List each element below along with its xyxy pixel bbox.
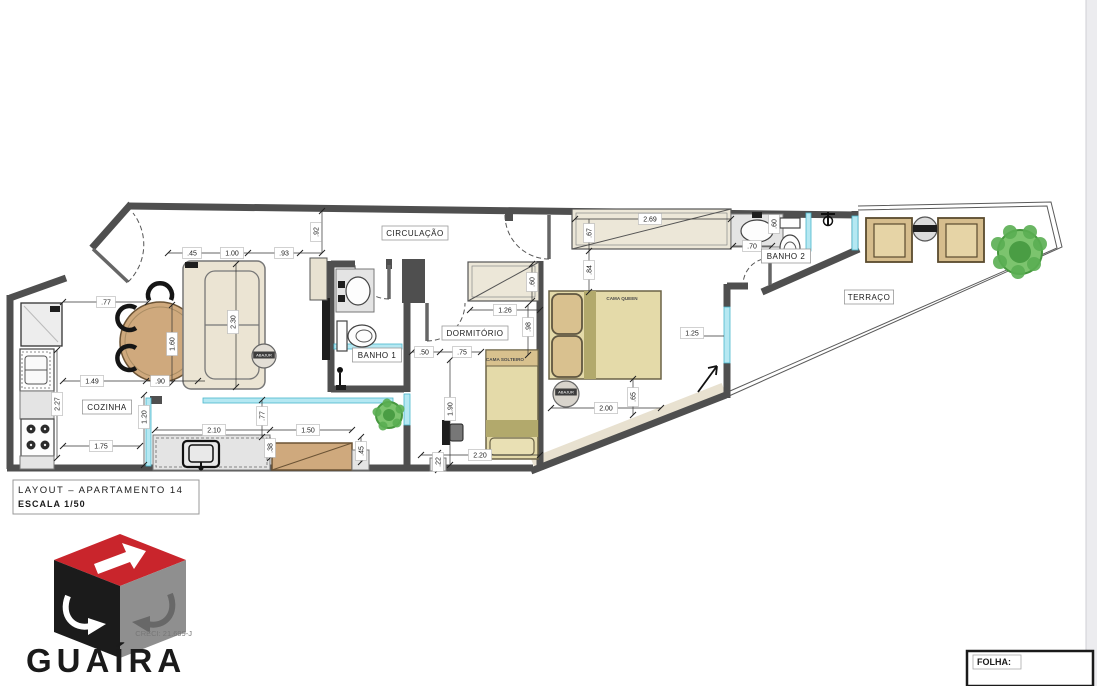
dimension-text: 2.00 bbox=[599, 406, 613, 413]
dorm-desk bbox=[442, 420, 450, 445]
kitchen-counter bbox=[20, 391, 54, 419]
dimension-text: .75 bbox=[457, 350, 467, 357]
dimension-text: .22 bbox=[436, 457, 443, 467]
dimension-text: 2.30 bbox=[231, 315, 238, 329]
dimension-label: 1.90 bbox=[445, 397, 456, 420]
dimension-text: .65 bbox=[631, 392, 638, 402]
dimension-label: .60 bbox=[527, 273, 538, 292]
dimension-label: .90 bbox=[151, 376, 170, 387]
plan-scale: ESCALA 1/50 bbox=[18, 499, 86, 509]
dimension-text: 1.50 bbox=[301, 428, 315, 435]
dimension-label: .75 bbox=[453, 347, 472, 358]
tv bbox=[322, 298, 330, 360]
folha-label: FOLHA: bbox=[977, 657, 1011, 667]
toilet2-tank bbox=[780, 218, 800, 228]
furniture-label: CAMA SOLTEIRO bbox=[486, 357, 524, 362]
folha-box: FOLHA: bbox=[967, 651, 1093, 686]
dimension-label: 1.49 bbox=[80, 376, 103, 387]
room-name: TERRAÇO bbox=[848, 293, 891, 302]
kitchen-appliances bbox=[20, 303, 62, 469]
banho1-sink bbox=[346, 277, 370, 305]
floor-plan-drawing: .771.49.902.271.201.751.60.451.00.93.922… bbox=[0, 0, 1097, 686]
dimension-label: 1.60 bbox=[167, 332, 178, 355]
dimension-text: .60 bbox=[530, 277, 537, 287]
furniture-tag-text: ABAJUR bbox=[256, 353, 272, 358]
dimension-label: .50 bbox=[415, 347, 434, 358]
dimension-label: 1.75 bbox=[89, 441, 112, 452]
dimension-text: 1.00 bbox=[225, 251, 239, 258]
room-name: COZINHA bbox=[87, 403, 127, 412]
dimension-label: .93 bbox=[275, 248, 294, 259]
dimension-label: 1.25 bbox=[680, 328, 703, 339]
sofa-tag bbox=[185, 262, 198, 268]
page-edge bbox=[1086, 0, 1097, 686]
dimension-label: .38 bbox=[265, 439, 276, 458]
dimension-text: .98 bbox=[526, 322, 533, 332]
dimension-text: 1.90 bbox=[448, 402, 455, 416]
plant bbox=[991, 225, 1047, 279]
title-block: LAYOUT – APARTAMENTO 14 ESCALA 1/50 bbox=[13, 480, 199, 514]
dimension-label: 2.69 bbox=[638, 214, 661, 225]
dimension-text: .84 bbox=[587, 265, 594, 275]
dimension-text: 1.60 bbox=[170, 337, 177, 351]
dimension-text: 2.10 bbox=[207, 428, 221, 435]
dimension-text: 1.26 bbox=[498, 308, 512, 315]
dimension-label: .60 bbox=[769, 215, 780, 234]
dimension-label: .70 bbox=[743, 241, 762, 252]
dimension-label: 2.27 bbox=[52, 392, 63, 415]
room-label: TERRAÇO bbox=[844, 290, 893, 304]
room-label: COZINHA bbox=[82, 400, 131, 414]
toilet-tank bbox=[337, 321, 347, 351]
dimension-label: .45 bbox=[183, 248, 202, 259]
dimension-label: .22 bbox=[433, 453, 444, 472]
dimension-text: .77 bbox=[101, 300, 111, 307]
dimension-label: .84 bbox=[584, 261, 595, 280]
dorm-tv bbox=[450, 424, 463, 441]
furniture-tag: ABAJUR bbox=[555, 389, 577, 396]
room-name: CIRCULAÇÃO bbox=[386, 229, 443, 238]
room-name: BANHO 2 bbox=[767, 252, 806, 261]
queen-pillow bbox=[552, 294, 582, 334]
dimension-label: 1.26 bbox=[493, 305, 516, 316]
furniture-tag: ABAJUR bbox=[253, 352, 275, 359]
dimension-label: .77 bbox=[257, 407, 268, 426]
dimension-label: .45 bbox=[356, 442, 367, 461]
dimension-text: .70 bbox=[747, 244, 757, 251]
dimension-text: .67 bbox=[587, 228, 594, 238]
fridge-tag bbox=[50, 306, 60, 312]
dimension-text: 2.20 bbox=[473, 453, 487, 460]
dimension-label: 2.10 bbox=[202, 425, 225, 436]
shower-knob bbox=[337, 367, 343, 373]
dimension-text: .77 bbox=[260, 411, 267, 421]
dimension-text: 1.25 bbox=[685, 331, 699, 338]
single-bedroom bbox=[430, 262, 539, 471]
brand-name: GUAÍRA bbox=[26, 642, 186, 679]
dimension-text: .45 bbox=[359, 446, 366, 456]
furniture-label: CAMA QUEEN bbox=[606, 296, 638, 301]
dimension-label: 2.30 bbox=[228, 310, 239, 333]
stove bbox=[21, 419, 54, 456]
room-label: CIRCULAÇÃO bbox=[382, 226, 448, 240]
dimension-text: 2.27 bbox=[55, 397, 62, 411]
dimension-text: .60 bbox=[772, 219, 779, 229]
bathroom-1 bbox=[336, 269, 376, 390]
queen-bedroom bbox=[549, 209, 731, 407]
dimension-text: .92 bbox=[314, 227, 321, 237]
dimension-text: .50 bbox=[419, 350, 429, 357]
living-room bbox=[183, 258, 330, 389]
queen-pillow bbox=[552, 336, 582, 377]
dimension-text: 2.69 bbox=[643, 217, 657, 224]
room-name: BANHO 1 bbox=[358, 351, 397, 360]
logo: CRECI: 21.699-J GUAÍRA bbox=[26, 534, 192, 679]
room-label: BANHO 1 bbox=[352, 348, 401, 362]
room-label: DORMITÓRIO bbox=[442, 326, 508, 340]
dimension-label: 2.00 bbox=[594, 403, 617, 414]
dimension-label: .65 bbox=[628, 388, 639, 407]
furniture-tag-text: ABAJUR bbox=[558, 390, 574, 395]
dimension-label: 1.20 bbox=[139, 405, 150, 428]
room-label: BANHO 2 bbox=[761, 249, 810, 263]
dining-chair bbox=[148, 283, 172, 300]
dimension-label: 2.20 bbox=[468, 450, 491, 461]
terrace-furniture bbox=[866, 217, 1047, 279]
plan-title: LAYOUT – APARTAMENTO 14 bbox=[18, 485, 183, 496]
floor-plan-sheet: .771.49.902.271.201.751.60.451.00.93.922… bbox=[0, 0, 1097, 686]
pillar bbox=[310, 258, 327, 300]
dimension-label: .92 bbox=[311, 223, 322, 242]
dimension-label: 1.00 bbox=[220, 248, 243, 259]
dimension-text: 1.75 bbox=[94, 444, 108, 451]
terrace-table-tag bbox=[913, 225, 937, 232]
dimension-text: .93 bbox=[279, 251, 289, 258]
room-name: DORMITÓRIO bbox=[447, 329, 504, 338]
dimension-label: .77 bbox=[97, 297, 116, 308]
creci-number: CRECI: 21.699-J bbox=[135, 629, 192, 638]
dimension-label: 1.50 bbox=[296, 425, 319, 436]
single-bed-pillow bbox=[490, 438, 534, 455]
dimension-label: .98 bbox=[523, 318, 534, 337]
dimension-text: .45 bbox=[187, 251, 197, 258]
dimension-text: 1.49 bbox=[85, 379, 99, 386]
dimension-text: .90 bbox=[155, 379, 165, 386]
dimension-text: 1.20 bbox=[142, 410, 149, 424]
dimension-label: .67 bbox=[584, 224, 595, 243]
dimension-text: .38 bbox=[268, 443, 275, 453]
